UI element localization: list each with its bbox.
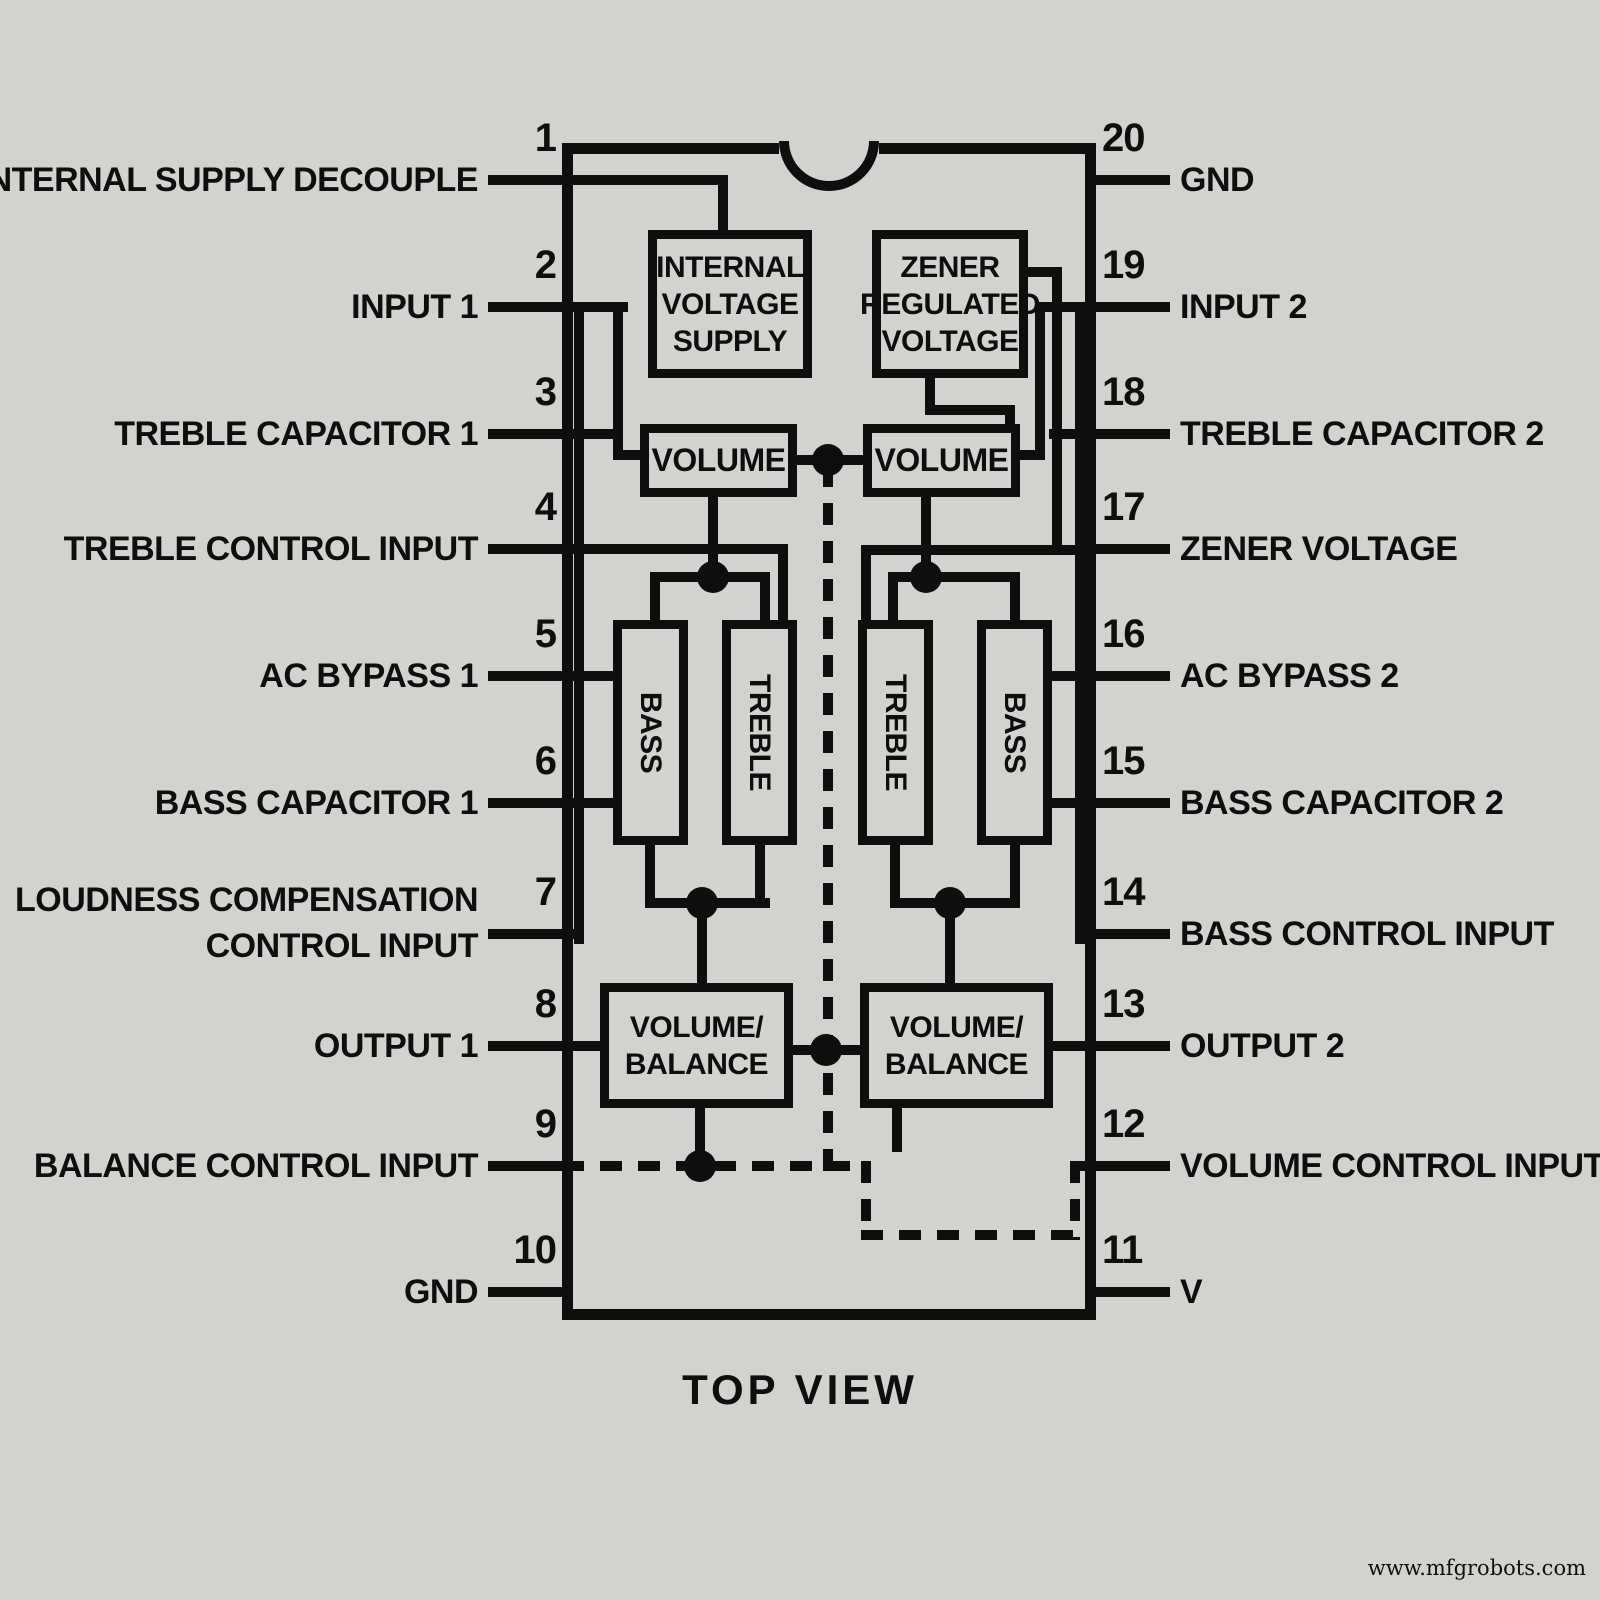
pin-8-line [488, 1041, 562, 1051]
pin-3-label-line: TREBLE CAPACITOR 1 [114, 411, 478, 457]
pin-2-label-line: INPUT 1 [351, 284, 478, 330]
block-internal-voltage-supply-label-line: SUPPLY [673, 323, 787, 360]
pin-19-number: 19 [1102, 241, 1145, 289]
block-bass-1-label: BASS [632, 692, 669, 773]
pin-11-line [1096, 1287, 1170, 1297]
pin-15-line [1096, 798, 1170, 808]
dashed-wire [861, 1230, 1080, 1240]
pin-14-label-line: BASS CONTROL INPUT [1180, 911, 1554, 957]
pin-3-number: 3 [535, 368, 556, 416]
wire [925, 405, 1015, 415]
block-internal-voltage-supply-label-line: INTERNAL [656, 249, 804, 286]
pin-5-number: 5 [535, 610, 556, 658]
block-zener-regulated-voltage-label-line: REGULATED [860, 286, 1040, 323]
wire [574, 302, 584, 944]
pin-4-label-line: TREBLE CONTROL INPUT [64, 526, 478, 572]
junction-dot [934, 887, 966, 919]
pin-8-label-line: OUTPUT 1 [314, 1023, 478, 1069]
pin-10-label-line: GND [404, 1269, 478, 1315]
wire [1052, 267, 1062, 555]
pin-17-number: 17 [1102, 483, 1145, 531]
pin-12-label-line: VOLUME CONTROL INPUT [1180, 1143, 1600, 1189]
pin-2-label: INPUT 1 [351, 284, 478, 330]
pin-6-label: BASS CAPACITOR 1 [155, 780, 478, 826]
wire [650, 572, 660, 625]
pin-19-line [1096, 302, 1170, 312]
block-volume-balance-1-label-line: VOLUME/ [630, 1009, 763, 1046]
pin-9-label: BALANCE CONTROL INPUT [34, 1143, 478, 1189]
pin-11-label: V [1180, 1269, 1202, 1315]
wire [1052, 798, 1096, 808]
pin-14-number: 14 [1102, 868, 1145, 916]
block-bass-2-label: BASS [996, 692, 1033, 773]
pin-14-label: BASS CONTROL INPUT [1180, 911, 1554, 957]
pin-15-label-line: BASS CAPACITOR 2 [1180, 780, 1503, 826]
diagram-title: TOP VIEW [620, 1366, 980, 1416]
pin-7-label-line: CONTROL INPUT [15, 923, 478, 969]
pin-18-line [1096, 429, 1170, 439]
wire [861, 545, 1096, 555]
pin-17-line [1096, 544, 1170, 554]
junction-dot [697, 561, 729, 593]
wire [1075, 929, 1096, 939]
watermark-text: www.mfgrobots.com [1286, 1556, 1586, 1580]
pin-8-number: 8 [535, 980, 556, 1028]
block-zener-regulated-voltage-label-line: VOLTAGE [881, 323, 1018, 360]
wire [778, 544, 788, 626]
pin-5-label-line: AC BYPASS 1 [259, 653, 478, 699]
block-internal-voltage-supply: INTERNALVOLTAGESUPPLY [648, 230, 812, 378]
pin-4-line [488, 544, 562, 554]
block-volume-balance-2: VOLUME/BALANCE [860, 983, 1053, 1108]
pin-5-label: AC BYPASS 1 [259, 653, 478, 699]
block-treble-1: TREBLE [722, 620, 797, 845]
wire [562, 429, 622, 439]
wire [562, 671, 618, 681]
block-bass-1: BASS [613, 620, 688, 845]
pin-11-label-line: V [1180, 1269, 1202, 1315]
pin-12-label: VOLUME CONTROL INPUT [1180, 1143, 1600, 1189]
pin-20-label: GND [1180, 157, 1254, 203]
pin-9-line [488, 1161, 562, 1171]
junction-dot [684, 1150, 716, 1182]
block-treble-1-label: TREBLE [741, 674, 778, 791]
wire [861, 545, 871, 626]
wire [1052, 671, 1096, 681]
pin-17-label: ZENER VOLTAGE [1180, 526, 1457, 572]
block-zener-regulated-voltage: ZENERREGULATEDVOLTAGE [872, 230, 1028, 378]
wire [1075, 302, 1085, 944]
pin-17-label-line: ZENER VOLTAGE [1180, 526, 1457, 572]
pin-20-label-line: GND [1180, 157, 1254, 203]
pin-12-line [1096, 1161, 1170, 1171]
pin-16-number: 16 [1102, 610, 1145, 658]
pin-1-line [488, 175, 562, 185]
block-treble-2-label: TREBLE [877, 674, 914, 791]
pin-5-line [488, 671, 562, 681]
pin-13-line [1096, 1041, 1170, 1051]
pin-10-number: 10 [514, 1226, 557, 1274]
block-volume-balance-2-label-line: BALANCE [885, 1046, 1028, 1083]
pin-1-label: INTERNAL SUPPLY DECOUPLE [0, 157, 478, 203]
pin-15-number: 15 [1102, 737, 1145, 785]
pin-2-line [488, 302, 562, 312]
block-zener-regulated-voltage-label-line: ZENER [900, 249, 999, 286]
pin-2-number: 2 [535, 241, 556, 289]
block-volume-balance-2-label-line: VOLUME/ [890, 1009, 1023, 1046]
wire [760, 572, 770, 625]
wire [562, 175, 728, 185]
pin-19-label: INPUT 2 [1180, 284, 1307, 330]
block-volume-balance-1-label-line: BALANCE [625, 1046, 768, 1083]
wire [562, 929, 584, 939]
wire [888, 572, 898, 625]
pin-7-label-line: LOUDNESS COMPENSATION [15, 877, 478, 923]
pin-4-number: 4 [535, 483, 556, 531]
pin-20-line [1096, 175, 1170, 185]
wire [888, 572, 1020, 582]
pin-13-label-line: OUTPUT 2 [1180, 1023, 1344, 1069]
pin-7-number: 7 [535, 868, 556, 916]
block-volume-balance-1: VOLUME/BALANCE [600, 983, 793, 1108]
pin-6-label-line: BASS CAPACITOR 1 [155, 780, 478, 826]
pin-16-label-line: AC BYPASS 2 [1180, 653, 1399, 699]
junction-dot [812, 444, 844, 476]
wire [562, 798, 618, 808]
pin-10-label: GND [404, 1269, 478, 1315]
pin-11-number: 11 [1102, 1226, 1142, 1274]
pin-19-label-line: INPUT 2 [1180, 284, 1307, 330]
block-volume-2-label-line: VOLUME [875, 442, 1009, 479]
wire [562, 544, 788, 554]
pin-7-label: LOUDNESS COMPENSATIONCONTROL INPUT [15, 877, 478, 969]
block-volume-1: VOLUME [640, 424, 797, 497]
pin-6-line [488, 798, 562, 808]
pin-13-label: OUTPUT 2 [1180, 1023, 1344, 1069]
pin-18-label: TREBLE CAPACITOR 2 [1180, 411, 1544, 457]
pin-16-line [1096, 671, 1170, 681]
wire [1010, 572, 1020, 625]
pin-8-label: OUTPUT 1 [314, 1023, 478, 1069]
pin-4-label: TREBLE CONTROL INPUT [64, 526, 478, 572]
junction-dot [686, 887, 718, 919]
pin-14-line [1096, 929, 1170, 939]
pin-3-label: TREBLE CAPACITOR 1 [114, 411, 478, 457]
wire [1035, 302, 1045, 460]
dashed-wire [861, 1161, 871, 1240]
wire [892, 1108, 902, 1152]
pin-1-label-line: INTERNAL SUPPLY DECOUPLE [0, 157, 478, 203]
ic-pinout-diagram: 1INTERNAL SUPPLY DECOUPLE2INPUT 13TREBLE… [0, 0, 1600, 1600]
junction-dot [810, 1034, 842, 1066]
pin-9-number: 9 [535, 1100, 556, 1148]
dashed-wire [1070, 1161, 1080, 1240]
junction-dot [910, 561, 942, 593]
pin-15-label: BASS CAPACITOR 2 [1180, 780, 1503, 826]
pin-10-line [488, 1287, 562, 1297]
pin-18-label-line: TREBLE CAPACITOR 2 [1180, 411, 1544, 457]
pin-13-number: 13 [1102, 980, 1145, 1028]
pin-12-number: 12 [1102, 1100, 1145, 1148]
pin-7-line [488, 929, 562, 939]
pin-20-number: 20 [1102, 114, 1145, 162]
pin-16-label: AC BYPASS 2 [1180, 653, 1399, 699]
block-internal-voltage-supply-label-line: VOLTAGE [661, 286, 798, 323]
pin-6-number: 6 [535, 737, 556, 785]
pin-9-label-line: BALANCE CONTROL INPUT [34, 1143, 478, 1189]
block-volume-2: VOLUME [863, 424, 1020, 497]
pin-1-number: 1 [535, 114, 556, 162]
block-bass-2: BASS [977, 620, 1052, 845]
pin-3-line [488, 429, 562, 439]
wire [1053, 1041, 1096, 1051]
block-volume-1-label-line: VOLUME [652, 442, 786, 479]
pin-18-number: 18 [1102, 368, 1145, 416]
wire [1080, 1161, 1096, 1171]
block-treble-2: TREBLE [858, 620, 933, 845]
